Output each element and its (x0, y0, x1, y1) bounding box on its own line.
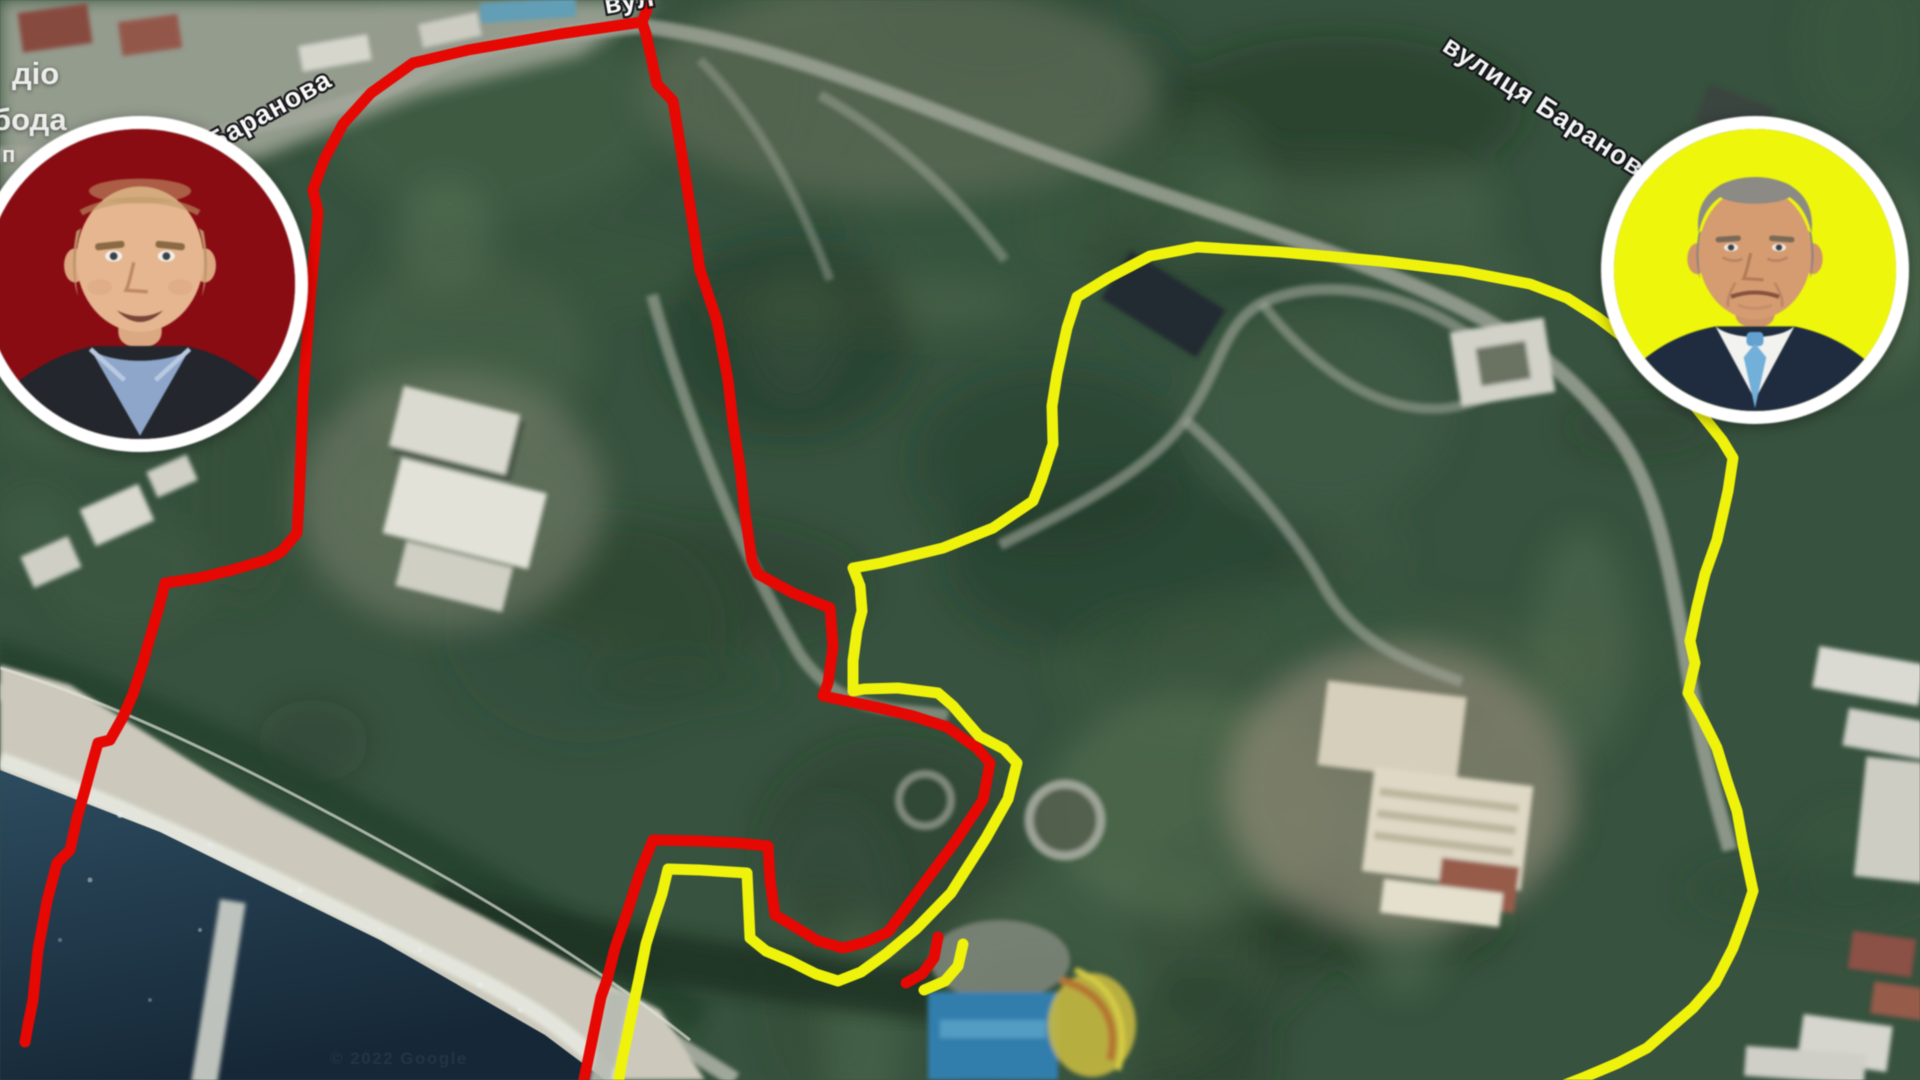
screenshot: вулиця Баранова Баранова вул діо бода п … (0, 0, 1920, 1080)
google-attribution: © 2022 Google (330, 1049, 468, 1069)
courtyard-house (1450, 318, 1556, 407)
aquapark-deck (930, 920, 1070, 1000)
watermark-line-3: п (2, 144, 15, 166)
aquapark-pool-lane (940, 1020, 1046, 1038)
satellite-map[interactable]: вулиця Баранова Баранова вул (0, 0, 1920, 1080)
watermark-line-2: бода (0, 104, 67, 135)
portrait-right-owner (1601, 116, 1909, 424)
round-plaza (1029, 784, 1101, 856)
watermark-line-1: діо (12, 58, 59, 89)
